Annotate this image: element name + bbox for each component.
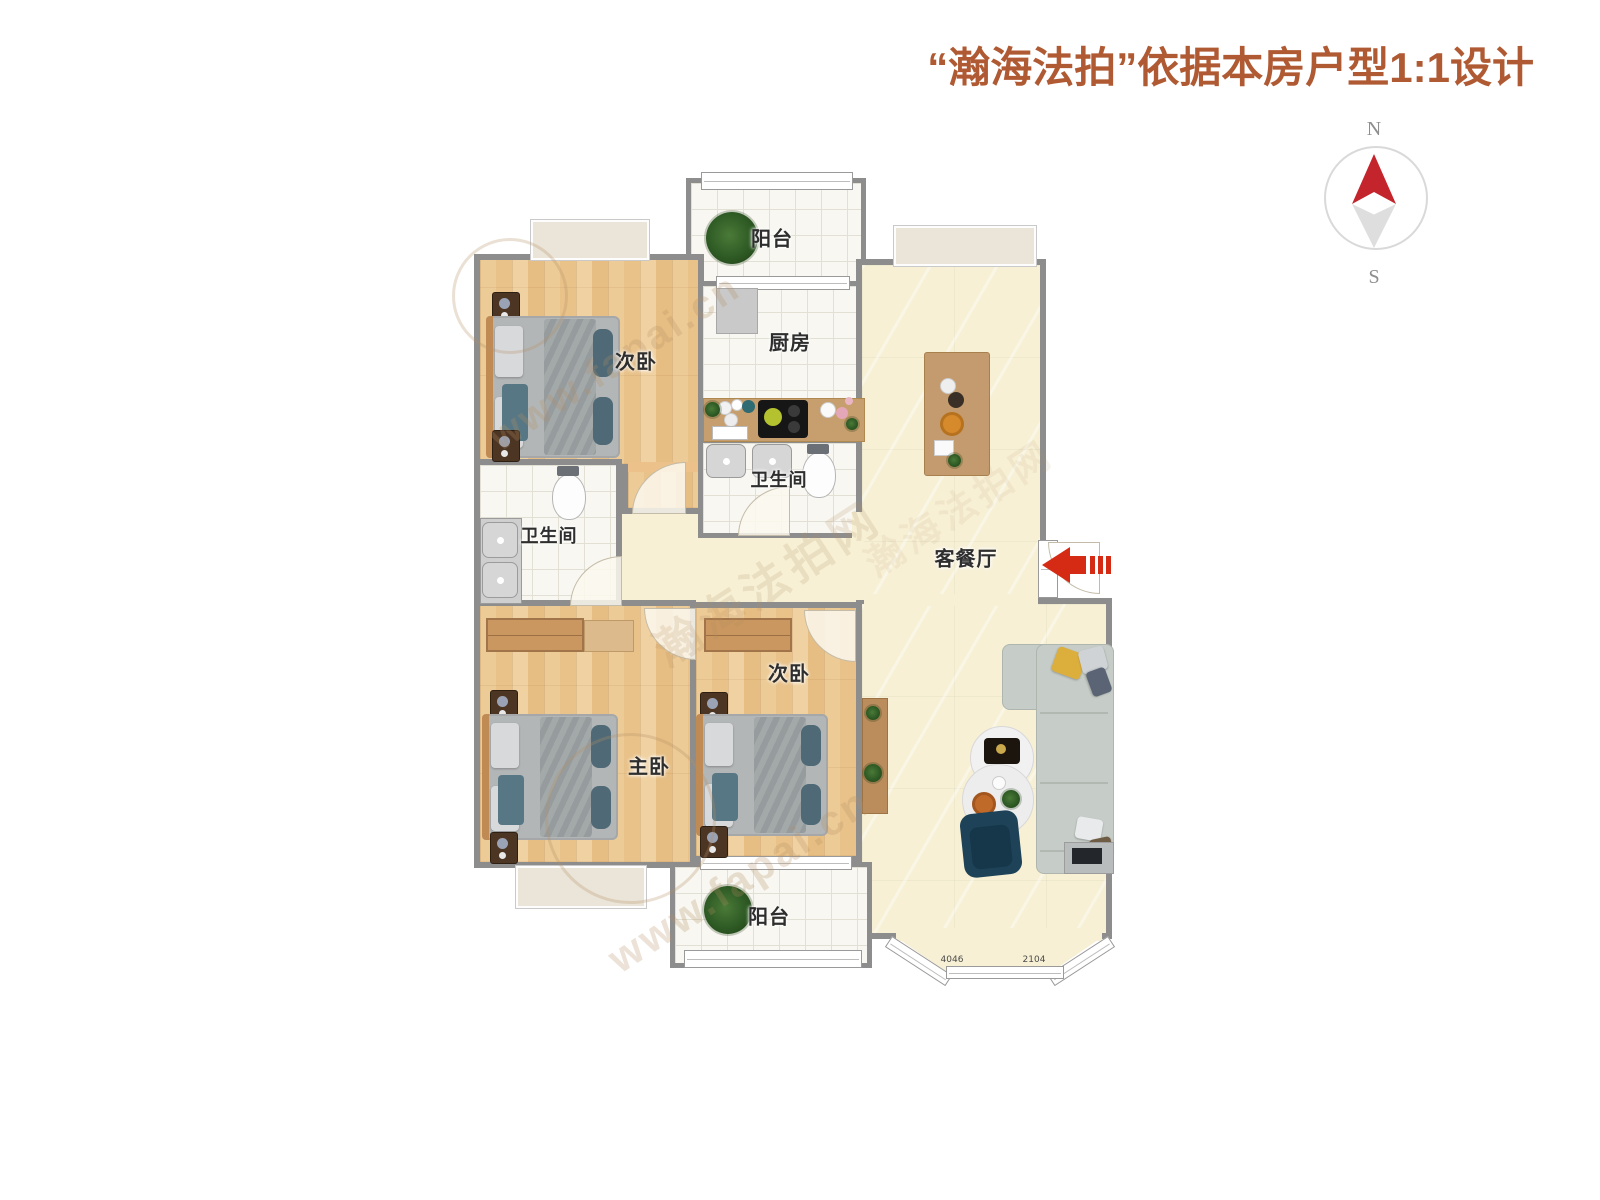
nightstand bbox=[490, 832, 518, 864]
bed-master bbox=[482, 714, 618, 840]
sink bbox=[482, 562, 518, 598]
tray-decor bbox=[996, 744, 1006, 754]
nightstand-decor bbox=[497, 696, 508, 707]
bed-headboard bbox=[482, 714, 489, 840]
label-bedroom-second: 次卧 bbox=[768, 658, 810, 687]
door-bedroom-balcony bbox=[700, 856, 852, 870]
nightstand bbox=[492, 430, 520, 462]
toilet-tank bbox=[557, 466, 579, 476]
armchair-seat bbox=[969, 824, 1013, 870]
nightstand-decor bbox=[499, 436, 510, 447]
sink bbox=[482, 522, 518, 558]
plate bbox=[724, 413, 738, 427]
nightstand-decor bbox=[497, 838, 508, 849]
bed-pillow bbox=[705, 723, 733, 767]
cup bbox=[992, 776, 1006, 790]
nightstand-decor bbox=[499, 298, 510, 309]
toilet-bowl bbox=[552, 474, 586, 520]
bed-bolster bbox=[591, 786, 611, 829]
living-section-opening bbox=[864, 594, 1038, 606]
potted-plant bbox=[704, 886, 752, 934]
toilet-tank bbox=[807, 444, 829, 454]
bed-bolster bbox=[591, 725, 611, 768]
plate bbox=[820, 402, 836, 418]
toilet bbox=[550, 466, 586, 518]
window-bedroom-top-left bbox=[531, 220, 649, 260]
wardrobe-second bbox=[704, 618, 792, 652]
bed-pillow-teal bbox=[498, 775, 524, 825]
label-balcony-bottom: 阳台 bbox=[748, 901, 790, 930]
bay-window-center-pane bbox=[946, 966, 1064, 979]
fridge bbox=[716, 288, 758, 334]
tray bbox=[712, 426, 748, 440]
page-title: “瀚海法拍”依据本房户型1:1设计 bbox=[927, 34, 1534, 95]
label-bathroom-small: 卫生间 bbox=[751, 466, 808, 492]
console-plant bbox=[866, 706, 880, 720]
bed-bolster bbox=[801, 725, 821, 766]
label-bathroom-main: 卫生间 bbox=[521, 522, 578, 548]
bed-blanket bbox=[754, 717, 806, 833]
sofa-seam bbox=[1040, 712, 1108, 714]
entrance-arrow-bar bbox=[1090, 556, 1095, 574]
bed-bolster bbox=[593, 329, 613, 377]
bowl bbox=[742, 400, 755, 413]
window-balcony-bottom bbox=[684, 950, 862, 968]
compass-south-label: S bbox=[1322, 266, 1426, 289]
fruit-bowl bbox=[940, 412, 964, 436]
bed-blanket bbox=[544, 319, 596, 455]
label-balcony-top: 阳台 bbox=[751, 223, 793, 252]
entrance-arrow-bar bbox=[1106, 556, 1111, 574]
nightstand bbox=[700, 826, 728, 858]
bed-blanket bbox=[540, 717, 592, 837]
herb-plant bbox=[705, 402, 720, 417]
wardrobe-master bbox=[486, 618, 584, 652]
cooktop-burner bbox=[764, 408, 782, 426]
label-living-dining: 客餐厅 bbox=[935, 543, 998, 572]
entrance-arrow-bar bbox=[1098, 556, 1103, 574]
entrance-arrow-head bbox=[1042, 547, 1070, 583]
console-plant bbox=[864, 764, 882, 782]
bed-bolster bbox=[593, 397, 613, 445]
herb-plant bbox=[846, 418, 858, 430]
bed-pillow bbox=[495, 326, 523, 377]
label-master-bedroom: 主卧 bbox=[628, 751, 670, 780]
bed-pillow-teal bbox=[712, 773, 738, 822]
tv-screen bbox=[1072, 848, 1102, 864]
sofa-seam bbox=[1040, 782, 1108, 784]
cooktop-burner bbox=[788, 421, 800, 433]
plate bbox=[836, 407, 848, 419]
bowl bbox=[948, 392, 964, 408]
entrance-arrow-icon bbox=[1042, 547, 1112, 583]
dresser bbox=[584, 620, 634, 652]
entrance-arrow-shaft bbox=[1068, 556, 1086, 574]
window-balcony-top bbox=[701, 172, 853, 190]
hallway-living-opening bbox=[852, 512, 864, 600]
bay-window-opening bbox=[896, 928, 1102, 941]
compass: N S bbox=[1322, 118, 1426, 288]
nightstand-decor bbox=[707, 698, 718, 709]
nightstand-decor bbox=[707, 832, 718, 843]
cooktop-burner bbox=[788, 405, 800, 417]
window-living-top bbox=[894, 226, 1036, 266]
window-master-bedroom bbox=[516, 866, 646, 908]
bed-pillow bbox=[491, 723, 519, 768]
sink bbox=[706, 444, 746, 478]
label-bedroom-top-left: 次卧 bbox=[615, 346, 657, 375]
table-plant bbox=[948, 454, 961, 467]
label-kitchen: 厨房 bbox=[769, 327, 811, 356]
plate bbox=[845, 397, 853, 405]
compass-hub-icon bbox=[1366, 195, 1382, 211]
bay-dimension-left: 4046 bbox=[941, 955, 964, 965]
bed-headboard bbox=[696, 714, 703, 836]
bed-second bbox=[696, 714, 828, 836]
bay-dimension-right: 2104 bbox=[1023, 955, 1046, 965]
bed-bolster bbox=[801, 784, 821, 825]
table-plant bbox=[1002, 790, 1020, 808]
compass-north-label: N bbox=[1322, 118, 1426, 141]
floorplan-page: “瀚海法拍”依据本房户型1:1设计 N S bbox=[0, 0, 1600, 1200]
